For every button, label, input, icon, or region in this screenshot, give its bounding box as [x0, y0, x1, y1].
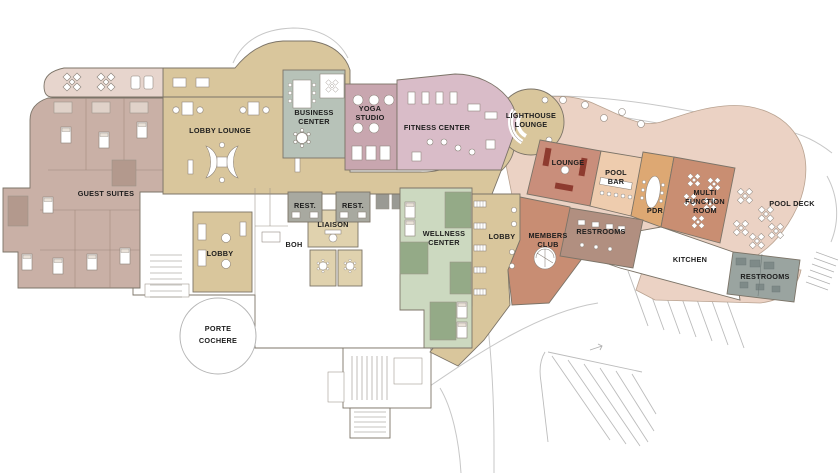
label-business-center: BUSINESS: [294, 108, 333, 117]
label-multi-function-room: MULTI: [694, 188, 717, 197]
label-lobby-main: LOBBY: [207, 249, 234, 258]
label-pool-bar: BAR: [608, 177, 625, 186]
floor-plan-page: GUEST SUITES LOBBY LOUNGE BUSINESS CENTE…: [0, 0, 840, 473]
floor-plan: GUEST SUITES LOBBY LOUNGE BUSINESS CENTE…: [0, 0, 840, 473]
label-multi-function-room: ROOM: [693, 206, 717, 215]
label-porte-cochere: COCHERE: [199, 336, 237, 345]
label-lobby-lounge: LOBBY LOUNGE: [189, 126, 251, 135]
label-rest-right: REST.: [342, 201, 364, 210]
label-multi-function-room: FUNCTION: [685, 197, 725, 206]
label-rest-left: REST.: [294, 201, 316, 210]
label-porte-cochere: PORTE: [205, 324, 231, 333]
label-lighthouse-lounge: LIGHTHOUSE: [506, 111, 556, 120]
label-yoga-studio: YOGA: [359, 104, 382, 113]
label-business-center: CENTER: [298, 117, 330, 126]
deck-stairs: [806, 252, 838, 290]
label-members-club: CLUB: [537, 240, 558, 249]
label-pdr: PDR: [647, 206, 664, 215]
zone-yoga-studio: [345, 84, 397, 170]
label-wellness-center: CENTER: [428, 238, 460, 247]
label-pool-bar: POOL: [605, 168, 627, 177]
label-yoga-studio: STUDIO: [355, 113, 384, 122]
zone-lounge: [527, 140, 601, 206]
label-lounge: LOUNGE: [552, 158, 585, 167]
label-restrooms-pool: RESTROOMS: [740, 272, 789, 281]
label-liaison: LIAISON: [317, 220, 348, 229]
liaison-desk-icon: [329, 234, 337, 242]
label-guest-suites: GUEST SUITES: [78, 189, 135, 198]
label-lobby-club: LOBBY: [489, 232, 516, 241]
label-fitness-center: FITNESS CENTER: [404, 123, 471, 132]
label-wellness-center: WELLNESS: [423, 229, 466, 238]
label-lighthouse-lounge: LOUNGE: [515, 120, 548, 129]
zone-fitness-center: [397, 74, 516, 170]
label-restrooms-club: RESTROOMS: [576, 227, 625, 236]
label-members-club: MEMBERS: [528, 231, 567, 240]
label-kitchen: KITCHEN: [673, 255, 707, 264]
label-pool-deck: POOL DECK: [769, 199, 815, 208]
label-boh: BOH: [286, 240, 303, 249]
